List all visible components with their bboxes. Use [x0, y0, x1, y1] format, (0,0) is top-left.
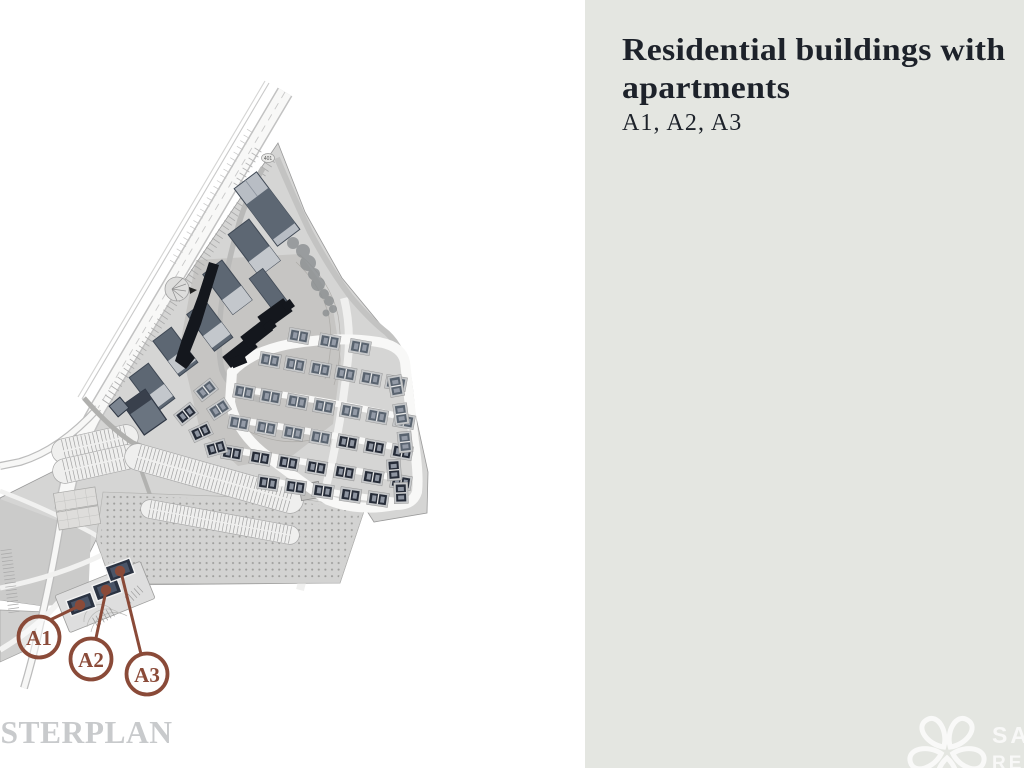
svg-text:A2: A2 [78, 648, 104, 672]
svg-text:A3: A3 [134, 663, 160, 687]
svg-text:A1: A1 [26, 626, 52, 650]
svg-text:401: 401 [264, 156, 273, 162]
